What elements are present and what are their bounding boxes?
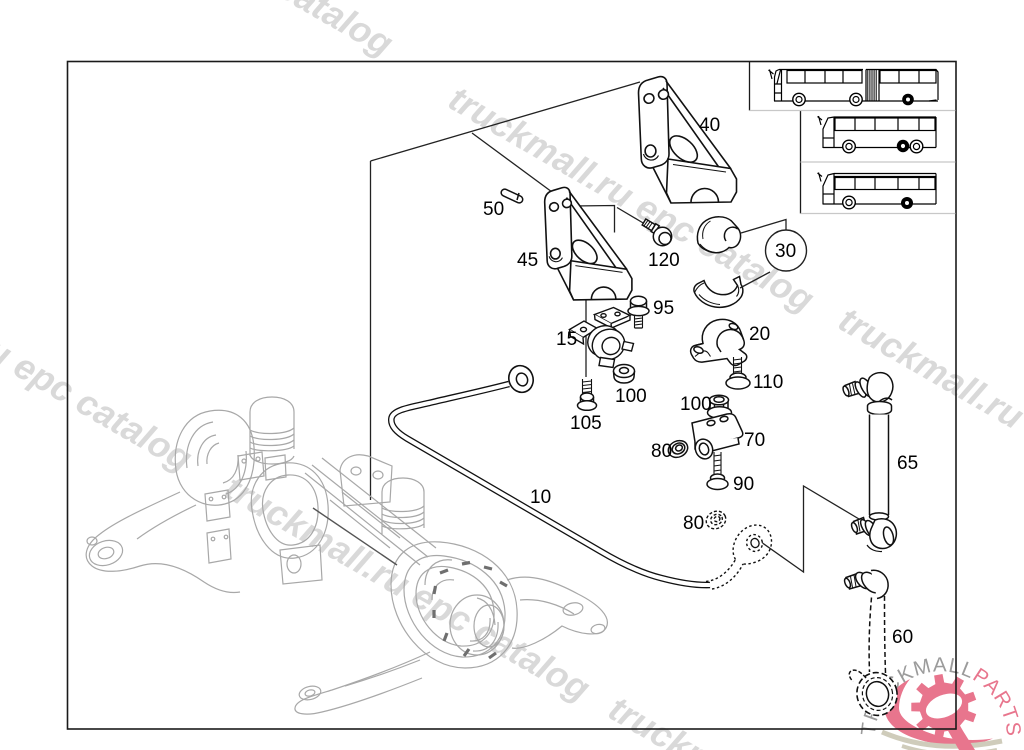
svg-text:90: 90 bbox=[733, 474, 754, 495]
svg-text:120: 120 bbox=[648, 250, 680, 271]
svg-text:95: 95 bbox=[653, 298, 674, 319]
svg-text:60: 60 bbox=[892, 627, 913, 648]
svg-text:100: 100 bbox=[680, 394, 712, 415]
svg-text:80: 80 bbox=[683, 513, 704, 534]
svg-text:50: 50 bbox=[483, 199, 504, 220]
svg-text:15: 15 bbox=[556, 329, 577, 350]
svg-text:105: 105 bbox=[570, 413, 602, 434]
svg-text:100: 100 bbox=[615, 386, 647, 407]
svg-text:40: 40 bbox=[699, 115, 720, 136]
svg-text:10: 10 bbox=[530, 487, 551, 508]
svg-text:80: 80 bbox=[651, 441, 672, 462]
svg-text:65: 65 bbox=[897, 453, 918, 474]
svg-text:110: 110 bbox=[753, 372, 783, 393]
svg-text:30: 30 bbox=[775, 241, 796, 262]
svg-text:70: 70 bbox=[744, 430, 765, 451]
svg-text:45: 45 bbox=[517, 250, 538, 271]
svg-text:20: 20 bbox=[749, 324, 770, 345]
